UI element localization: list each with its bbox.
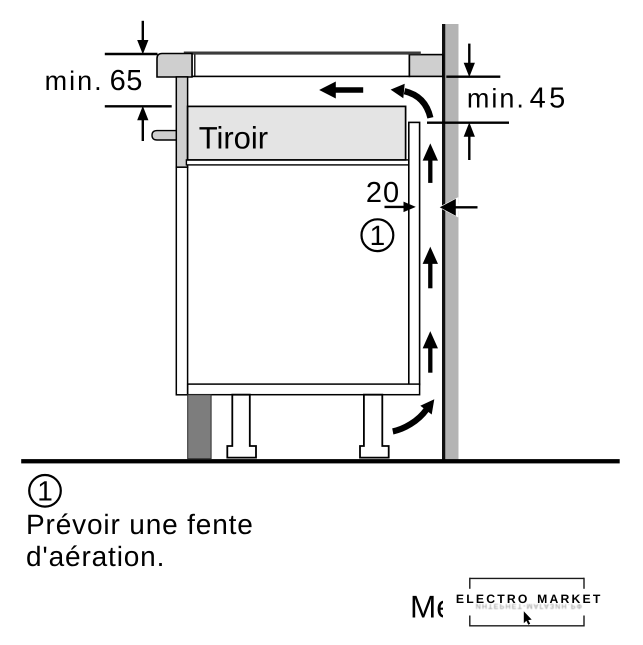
svg-text:min.: min.	[467, 84, 526, 114]
svg-text:d'aération.: d'aération.	[26, 541, 165, 572]
svg-text:20: 20	[366, 177, 400, 209]
svg-text:1: 1	[370, 220, 386, 251]
svg-text:65: 65	[110, 65, 143, 97]
svg-text:1: 1	[37, 476, 53, 507]
svg-text:45: 45	[530, 83, 569, 115]
svg-text:ИНТЕРНЕТ-МАГАЗИН.РФ: ИНТЕРНЕТ-МАГАЗИН.РФ	[476, 602, 583, 609]
svg-text:Prévoir une fente: Prévoir une fente	[26, 509, 254, 540]
svg-text:Tiroir: Tiroir	[199, 121, 268, 156]
svg-text:min.: min.	[45, 66, 104, 96]
